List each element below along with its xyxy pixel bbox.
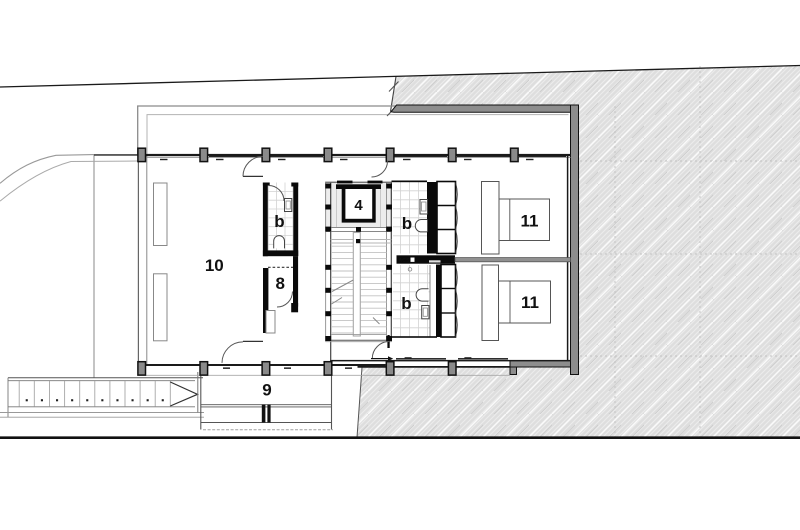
svg-text:ACS: ACS (399, 258, 411, 264)
svg-text:11: 11 (521, 212, 539, 231)
svg-text:4: 4 (354, 197, 363, 214)
svg-text:8: 8 (275, 274, 284, 293)
svg-text:10: 10 (205, 256, 224, 275)
svg-text:b: b (402, 214, 412, 233)
svg-text:b: b (274, 212, 284, 231)
svg-text:9: 9 (262, 381, 271, 400)
svg-text:11: 11 (521, 293, 539, 312)
svg-text:b: b (401, 294, 411, 313)
